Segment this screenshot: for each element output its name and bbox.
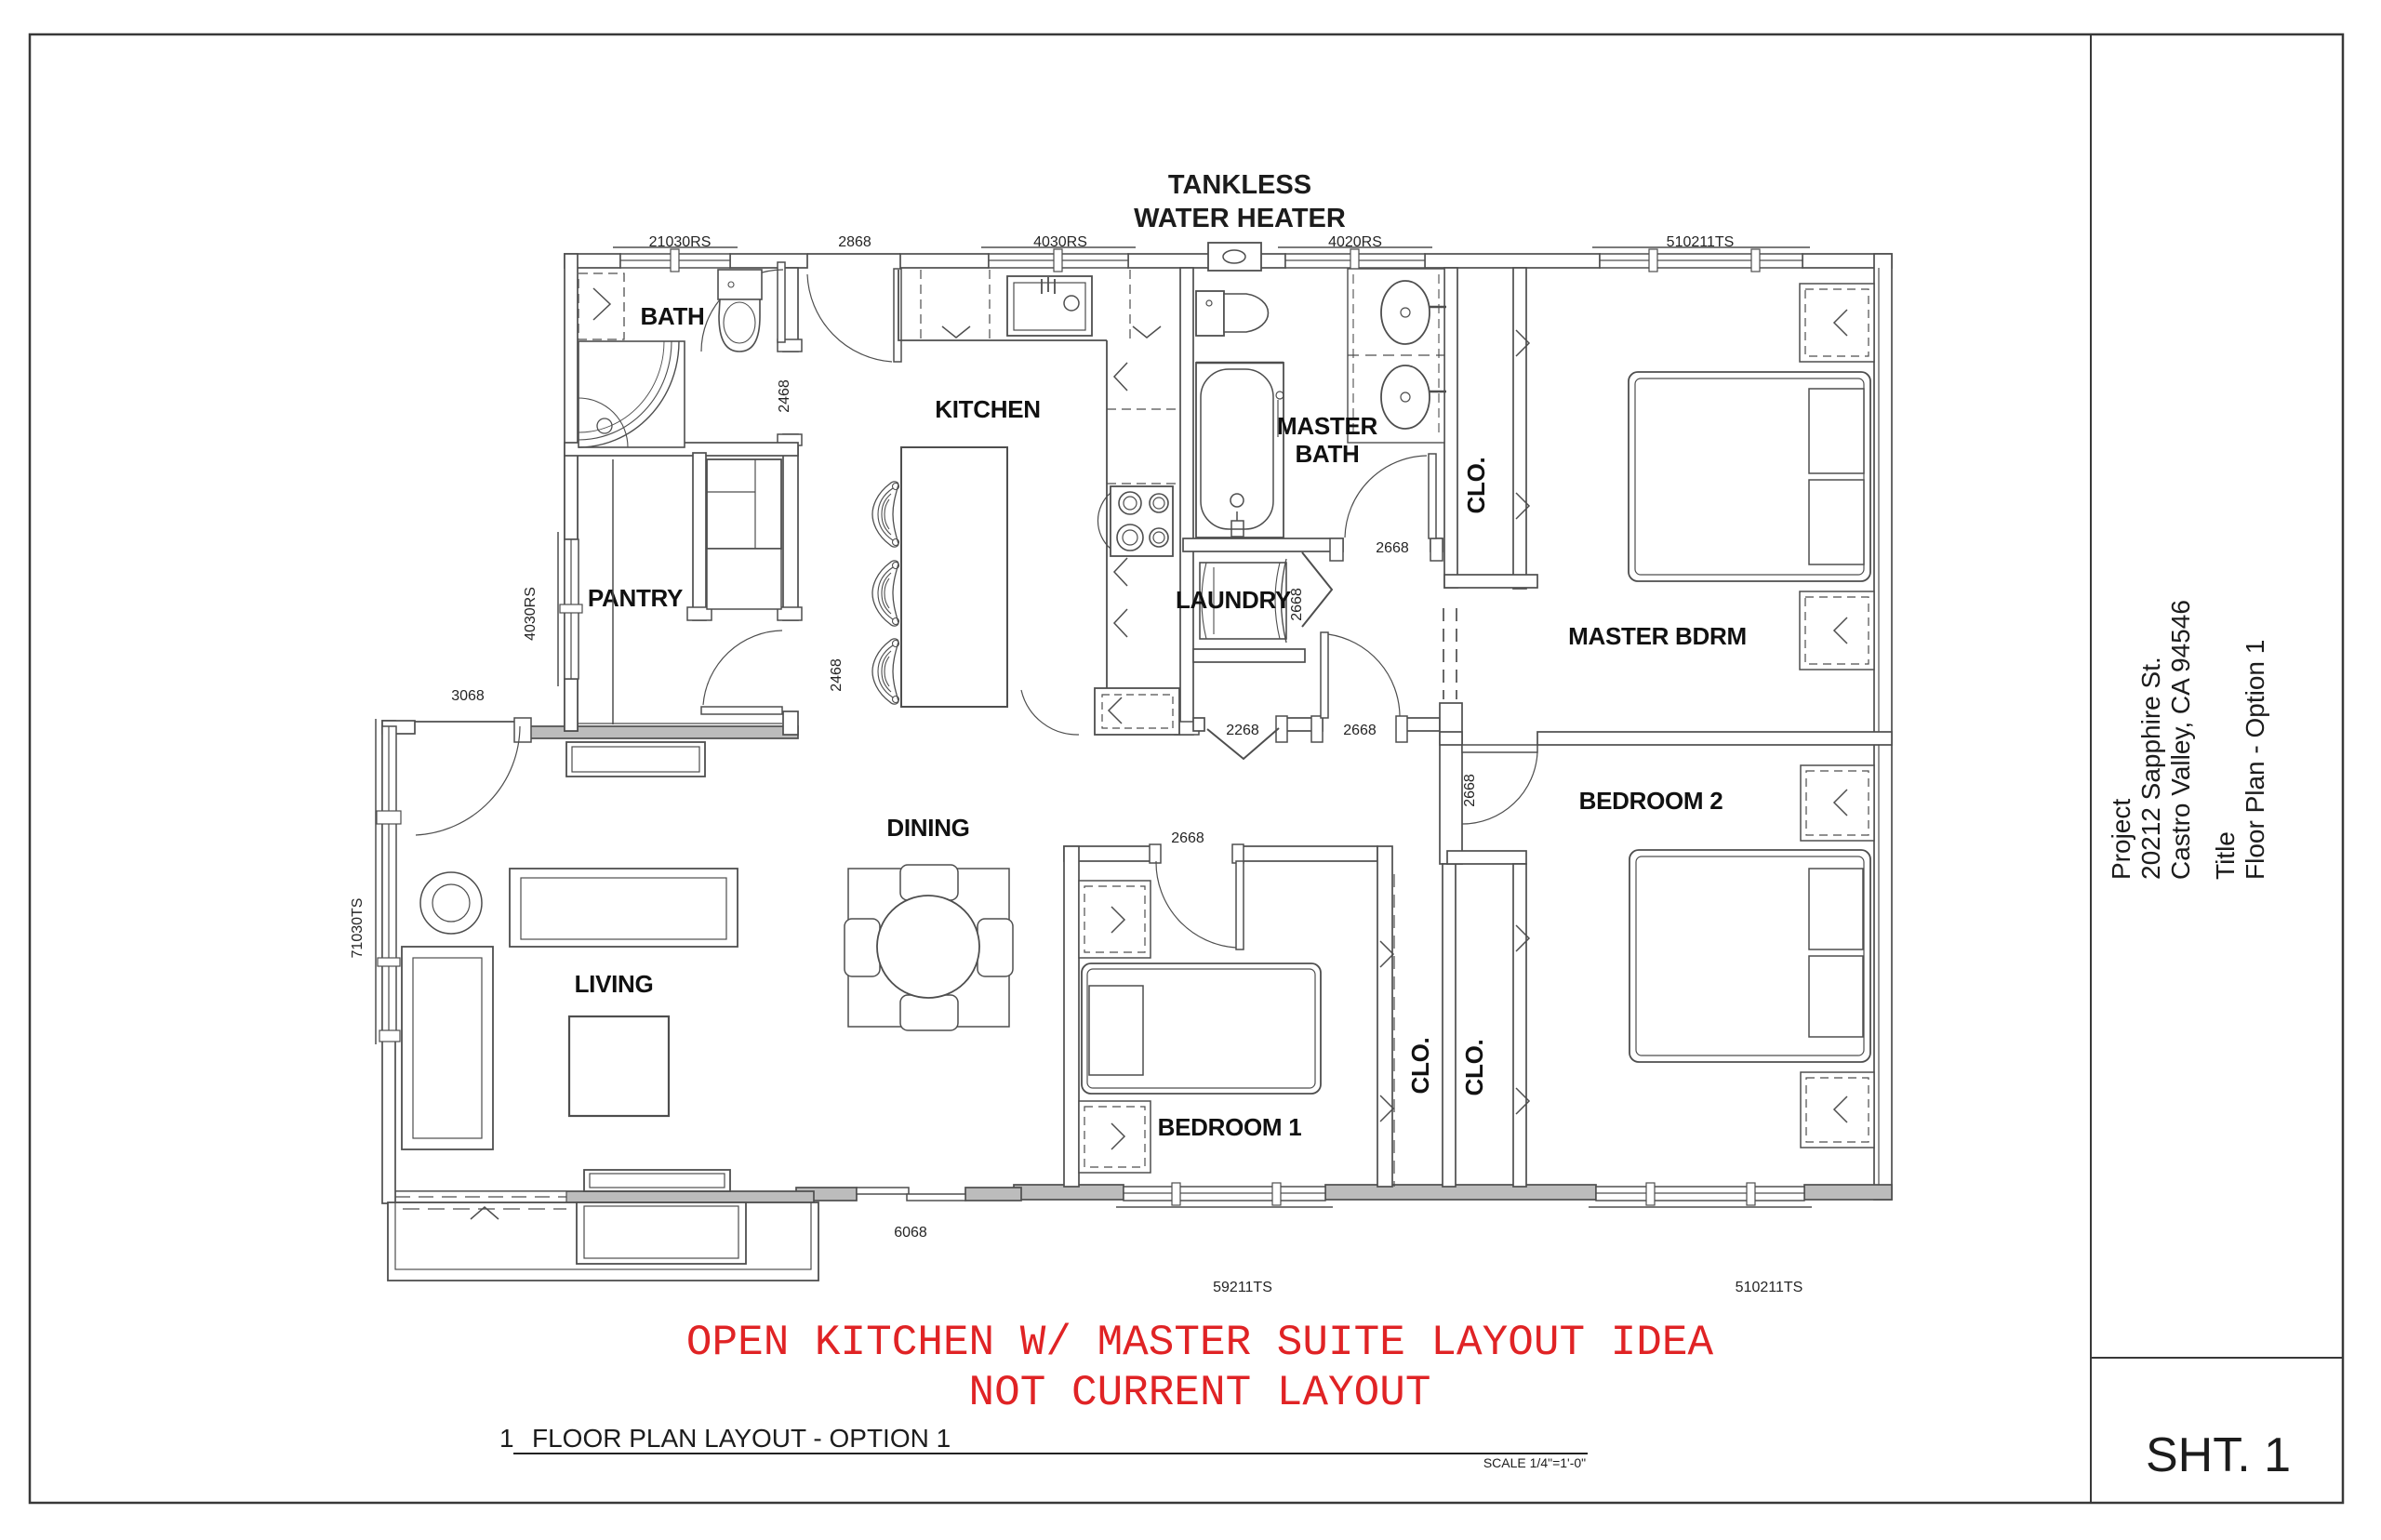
svg-text:LAUNDRY: LAUNDRY — [1176, 586, 1291, 614]
svg-text:BEDROOM 2: BEDROOM 2 — [1579, 787, 1723, 815]
svg-text:2468: 2468 — [829, 658, 845, 692]
svg-text:4020RS: 4020RS — [1328, 234, 1382, 250]
svg-text:CLO.: CLO. — [1406, 1038, 1434, 1095]
svg-text:3068: 3068 — [451, 688, 485, 704]
svg-text:NOT CURRENT LAYOUT: NOT CURRENT LAYOUT — [969, 1369, 1431, 1417]
svg-text:59211TS: 59211TS — [1213, 1280, 1272, 1295]
svg-text:MASTER: MASTER — [1277, 412, 1378, 440]
svg-text:510211TS: 510211TS — [1736, 1280, 1803, 1295]
svg-text:510211TS: 510211TS — [1667, 234, 1735, 250]
svg-text:OPEN KITCHEN W/ MASTER SUITE L: OPEN KITCHEN W/ MASTER SUITE LAYOUT IDEA — [686, 1319, 1714, 1367]
svg-text:2668: 2668 — [1462, 774, 1478, 807]
svg-text:2668: 2668 — [1171, 830, 1204, 846]
svg-text:2868: 2868 — [838, 234, 871, 250]
svg-text:Project: Project — [2107, 799, 2135, 880]
svg-text:Title: Title — [2211, 831, 2240, 880]
svg-text:Floor Plan - Option 1: Floor Plan - Option 1 — [2241, 640, 2269, 880]
svg-text:1: 1 — [499, 1424, 514, 1453]
svg-text:2468: 2468 — [777, 379, 792, 413]
svg-text:PANTRY: PANTRY — [588, 584, 683, 612]
svg-text:MASTER BDRM: MASTER BDRM — [1568, 622, 1747, 650]
svg-text:WATER HEATER: WATER HEATER — [1134, 204, 1346, 233]
svg-text:2668: 2668 — [1343, 723, 1377, 738]
svg-text:4030RS: 4030RS — [523, 587, 539, 641]
svg-text:Castro Valley, CA 94546: Castro Valley, CA 94546 — [2166, 600, 2195, 880]
svg-text:BEDROOM 1: BEDROOM 1 — [1158, 1113, 1302, 1141]
svg-text:4030RS: 4030RS — [1033, 234, 1087, 250]
svg-text:71030TS: 71030TS — [350, 898, 366, 959]
svg-text:6068: 6068 — [894, 1225, 927, 1241]
svg-text:21030RS: 21030RS — [649, 234, 712, 250]
svg-text:CLO.: CLO. — [1460, 1040, 1488, 1096]
svg-text:20212 Sapphire St.: 20212 Sapphire St. — [2136, 657, 2165, 880]
svg-text:SHT. 1: SHT. 1 — [2146, 1428, 2291, 1482]
svg-text:DINING: DINING — [886, 814, 969, 842]
svg-text:SCALE 1/4"=1'-0": SCALE 1/4"=1'-0" — [1483, 1455, 1586, 1470]
svg-text:BATH: BATH — [1295, 440, 1359, 468]
svg-text:TANKLESS: TANKLESS — [1168, 170, 1311, 200]
svg-text:2668: 2668 — [1289, 588, 1305, 621]
svg-text:CLO.: CLO. — [1462, 458, 1490, 514]
svg-text:BATH: BATH — [640, 302, 704, 330]
svg-text:LIVING: LIVING — [575, 970, 654, 998]
svg-text:FLOOR PLAN LAYOUT - OPTION 1: FLOOR PLAN LAYOUT - OPTION 1 — [532, 1424, 951, 1453]
svg-text:2268: 2268 — [1226, 723, 1259, 738]
svg-text:KITCHEN: KITCHEN — [935, 395, 1040, 423]
svg-text:2668: 2668 — [1376, 540, 1409, 556]
